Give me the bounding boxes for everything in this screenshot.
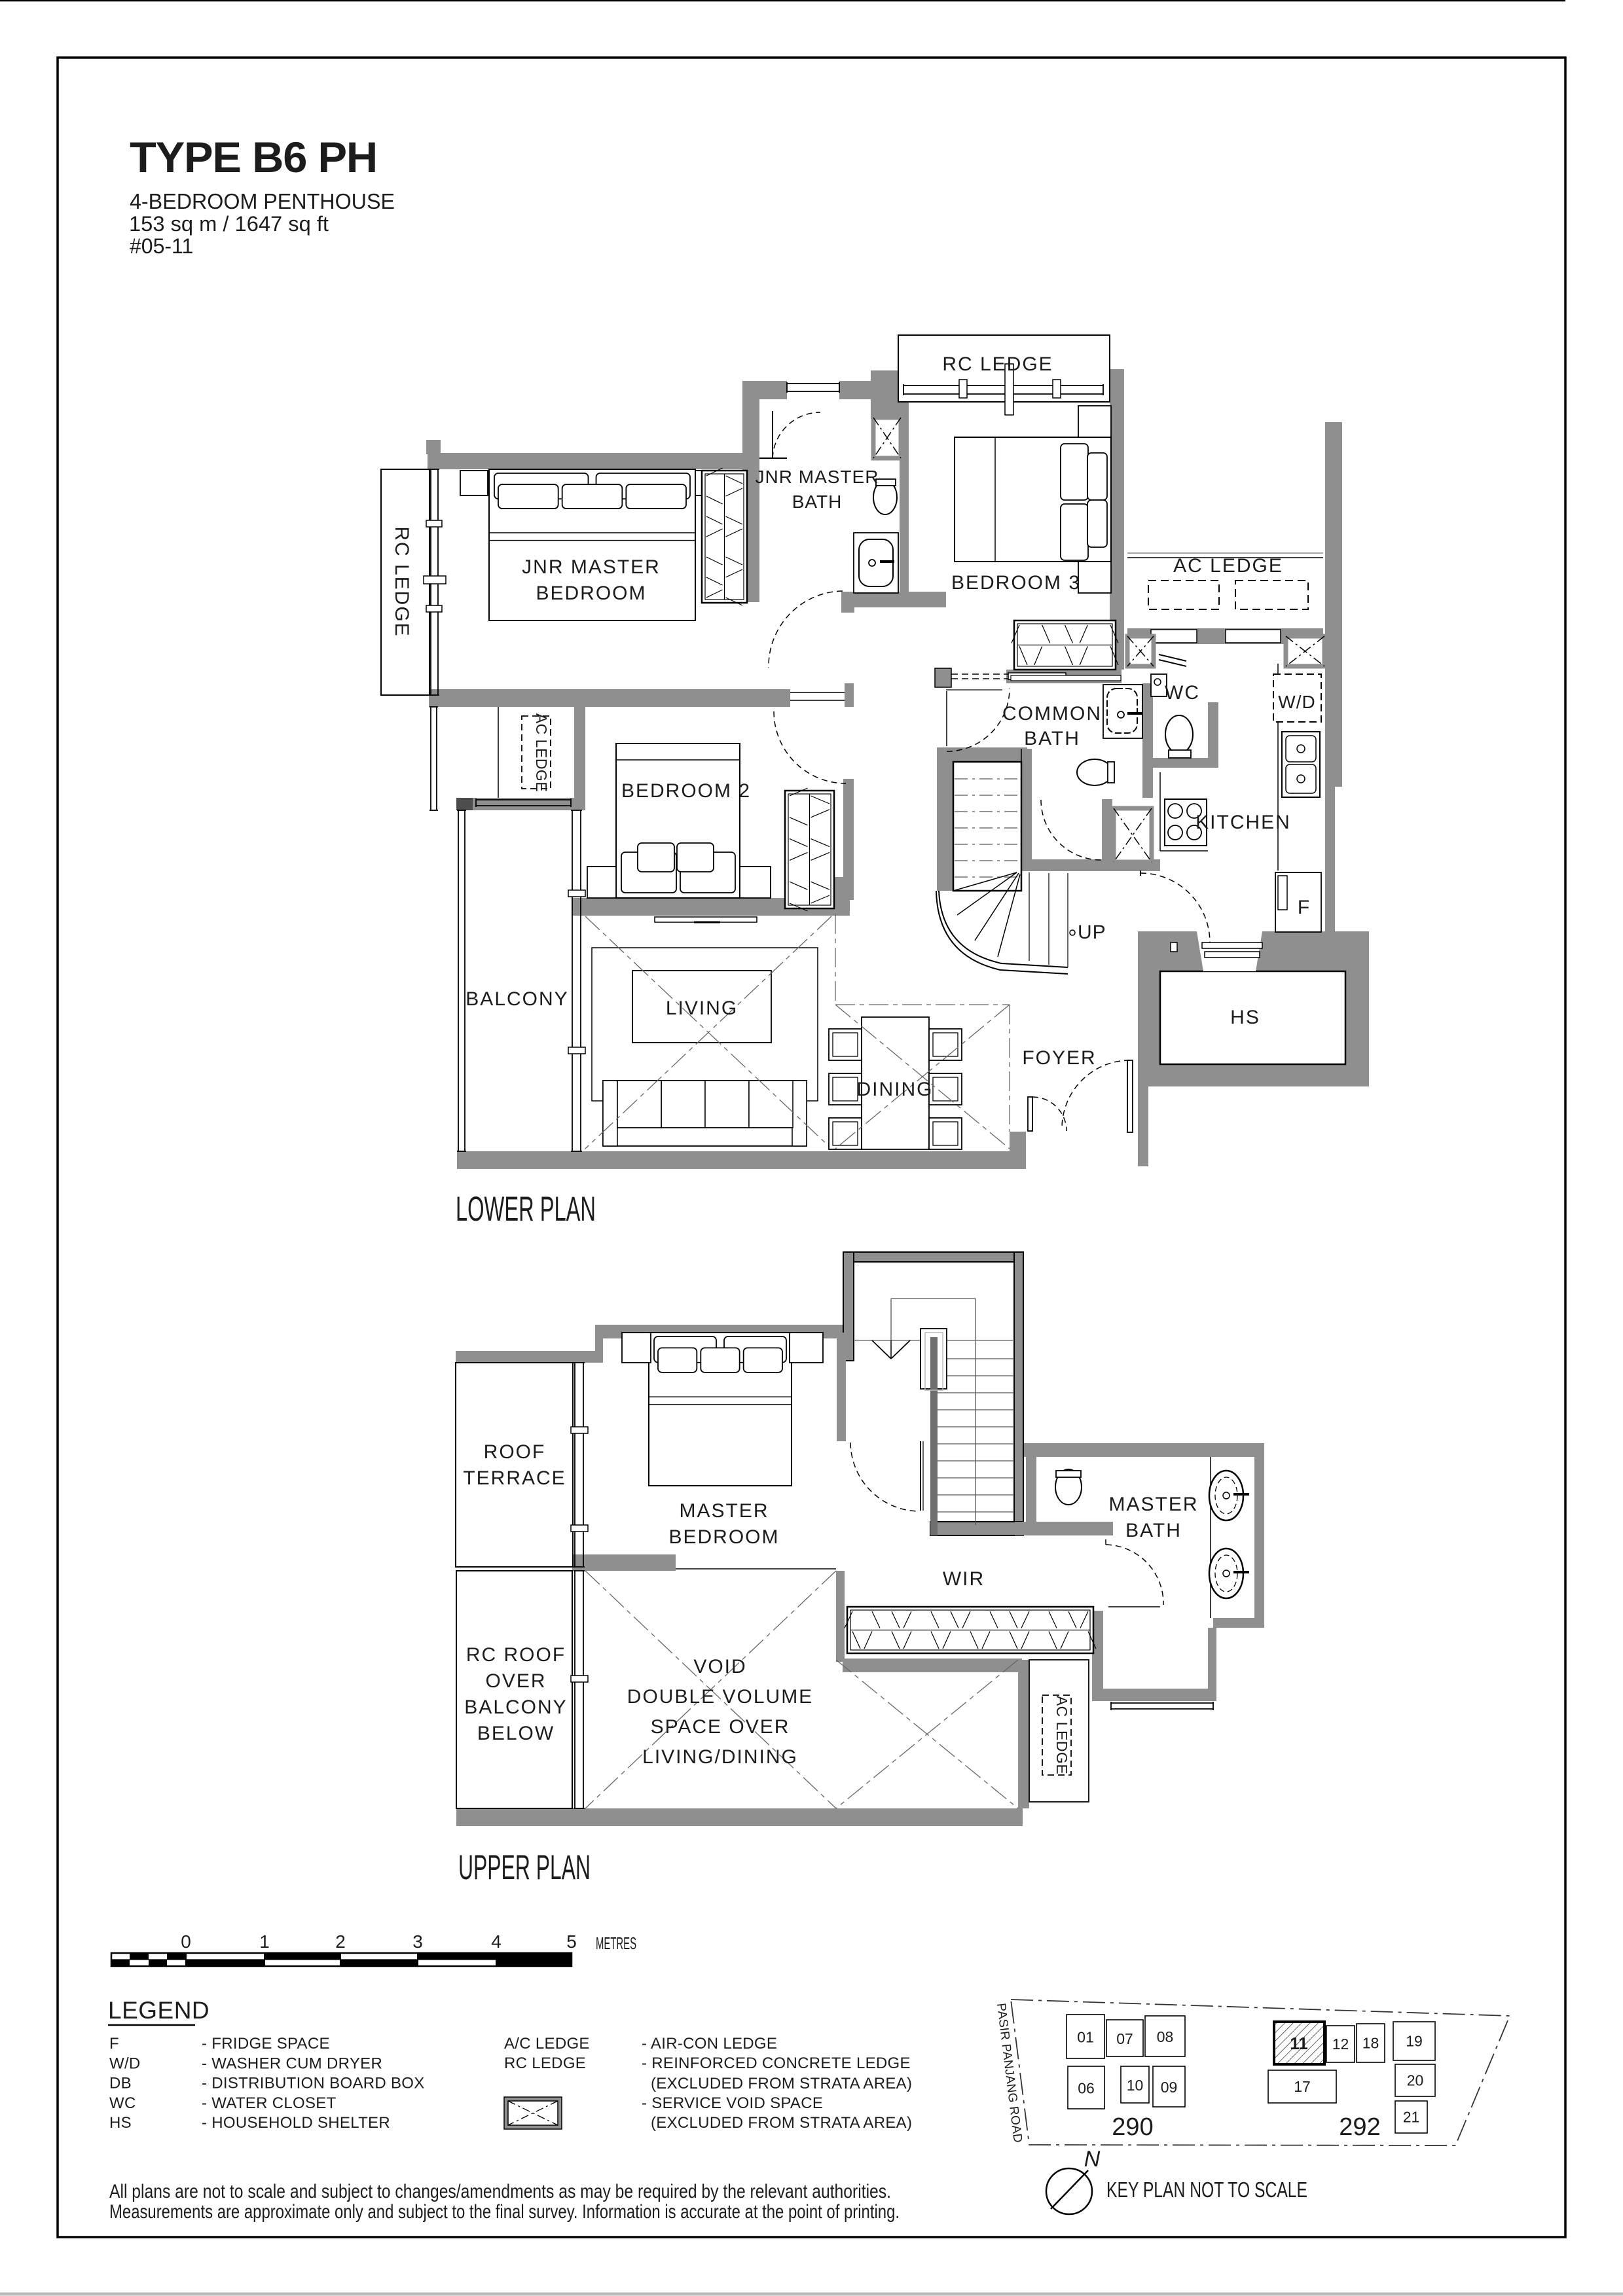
svg-text:BEDROOM 3: BEDROOM 3 <box>951 572 1081 594</box>
svg-text:MASTER: MASTER <box>1108 1494 1198 1515</box>
svg-text:2: 2 <box>335 1931 346 1952</box>
svg-text:JNR MASTER: JNR MASTER <box>756 467 879 487</box>
svg-text:12: 12 <box>1332 2036 1349 2053</box>
svg-text:ROOF: ROOF <box>484 1441 546 1463</box>
svg-text:LOWER PLAN: LOWER PLAN <box>456 1190 596 1229</box>
svg-text:KITCHEN: KITCHEN <box>1195 812 1291 833</box>
svg-text:LIVING: LIVING <box>666 997 738 1019</box>
svg-text:RC ROOF: RC ROOF <box>466 1644 566 1666</box>
svg-text:W/D: W/D <box>109 2054 141 2072</box>
svg-text:WC: WC <box>1165 682 1200 704</box>
svg-text:F: F <box>109 2035 119 2053</box>
svg-text:TYPE B6 PH: TYPE B6 PH <box>130 133 377 181</box>
svg-text:BEDROOM: BEDROOM <box>536 583 646 604</box>
svg-text:- DISTRIBUTION BOARD BOX: - DISTRIBUTION BOARD BOX <box>202 2075 425 2092</box>
svg-text:AC LEDGE: AC LEDGE <box>1053 1696 1070 1774</box>
svg-text:4-BEDROOM PENTHOUSE: 4-BEDROOM PENTHOUSE <box>130 189 395 213</box>
svg-text:19: 19 <box>1406 2033 1423 2050</box>
svg-text:DB: DB <box>109 2075 132 2092</box>
svg-text:3: 3 <box>412 1931 423 1952</box>
svg-text:- WATER CLOSET: - WATER CLOSET <box>202 2094 337 2112</box>
svg-text:W/D: W/D <box>1278 692 1315 712</box>
svg-text:290: 290 <box>1112 2113 1153 2141</box>
svg-text:AC LEDGE: AC LEDGE <box>533 713 550 792</box>
svg-text:FOYER: FOYER <box>1022 1047 1096 1069</box>
svg-text:LIVING/DINING: LIVING/DINING <box>642 1746 798 1768</box>
svg-text:RC LEDGE: RC LEDGE <box>504 2054 586 2072</box>
svg-text:0: 0 <box>181 1931 191 1952</box>
svg-text:- FRIDGE SPACE: - FRIDGE SPACE <box>202 2035 330 2053</box>
svg-text:- HOUSEHOLD SHELTER: - HOUSEHOLD SHELTER <box>202 2114 390 2132</box>
svg-text:RC LEDGE: RC LEDGE <box>391 526 412 637</box>
svg-text:20: 20 <box>1407 2072 1424 2089</box>
svg-text:LEGEND: LEGEND <box>108 1997 210 2024</box>
svg-text:BALCONY: BALCONY <box>464 1696 567 1718</box>
svg-text:DOUBLE VOLUME: DOUBLE VOLUME <box>627 1686 813 1708</box>
svg-text:01: 01 <box>1077 2029 1094 2046</box>
svg-text:292: 292 <box>1339 2113 1380 2141</box>
svg-text:RC LEDGE: RC LEDGE <box>942 353 1053 375</box>
svg-text:COMMON: COMMON <box>1002 703 1102 725</box>
svg-text:BATH: BATH <box>1125 1520 1182 1541</box>
svg-text:18: 18 <box>1362 2035 1379 2052</box>
svg-text:HS: HS <box>109 2114 132 2132</box>
svg-text:A/C LEDGE: A/C LEDGE <box>504 2035 590 2053</box>
svg-text:07: 07 <box>1116 2030 1133 2047</box>
svg-text:- SERVICE VOID SPACE: - SERVICE VOID SPACE <box>642 2094 823 2112</box>
svg-text:BEDROOM: BEDROOM <box>668 1526 779 1548</box>
svg-text:08: 08 <box>1157 2028 1174 2045</box>
svg-text:#05-11: #05-11 <box>130 234 193 258</box>
svg-text:JNR MASTER: JNR MASTER <box>522 556 661 578</box>
svg-text:- WASHER CUM DRYER: - WASHER CUM DRYER <box>202 2054 382 2072</box>
svg-text:AC LEDGE: AC LEDGE <box>1173 555 1283 577</box>
svg-text:BALCONY: BALCONY <box>465 988 568 1010</box>
svg-text:17: 17 <box>1294 2078 1311 2095</box>
svg-text:All plans are not to scale and: All plans are not to scale and subject t… <box>109 2181 891 2202</box>
svg-text:N: N <box>1084 2147 1101 2172</box>
svg-text:F: F <box>1298 897 1311 918</box>
svg-text:5: 5 <box>566 1931 577 1952</box>
svg-text:OVER: OVER <box>485 1670 546 1692</box>
svg-text:VOID: VOID <box>693 1656 746 1677</box>
svg-text:- REINFORCED CONCRETE LEDGE: - REINFORCED CONCRETE LEDGE <box>642 2054 911 2072</box>
svg-text:21: 21 <box>1403 2109 1420 2126</box>
svg-text:1: 1 <box>259 1931 270 1952</box>
svg-text:TERRACE: TERRACE <box>463 1467 566 1489</box>
svg-text:UPPER PLAN: UPPER PLAN <box>458 1848 591 1887</box>
svg-text:(EXCLUDED FROM STRATA AREA): (EXCLUDED FROM STRATA AREA) <box>651 2075 912 2092</box>
svg-text:06: 06 <box>1078 2080 1095 2097</box>
svg-text:BEDROOM 2: BEDROOM 2 <box>621 780 751 802</box>
svg-text:BATH: BATH <box>792 492 843 512</box>
svg-text:11: 11 <box>1290 2034 1308 2053</box>
svg-text:10: 10 <box>1127 2077 1144 2094</box>
svg-text:WC: WC <box>109 2094 136 2112</box>
svg-text:HS: HS <box>1230 1007 1260 1028</box>
svg-text:- AIR-CON LEDGE: - AIR-CON LEDGE <box>642 2035 777 2053</box>
svg-text:SPACE OVER: SPACE OVER <box>651 1716 790 1738</box>
svg-text:MASTER: MASTER <box>679 1500 769 1522</box>
svg-text:(EXCLUDED FROM STRATA AREA): (EXCLUDED FROM STRATA AREA) <box>651 2114 912 2132</box>
svg-text:WIR: WIR <box>943 1568 985 1590</box>
svg-text:Measurements are approximate o: Measurements are approximate only and su… <box>109 2201 900 2223</box>
svg-text:BATH: BATH <box>1024 728 1080 749</box>
svg-text:BELOW: BELOW <box>477 1723 555 1744</box>
svg-text:09: 09 <box>1161 2079 1178 2096</box>
svg-text:KEY PLAN NOT TO SCALE: KEY PLAN NOT TO SCALE <box>1106 2178 1307 2202</box>
svg-text:DINING: DINING <box>857 1079 934 1100</box>
svg-text:UP: UP <box>1078 922 1106 943</box>
svg-text:153 sq m / 1647 sq ft: 153 sq m / 1647 sq ft <box>129 212 329 236</box>
svg-text:METRES: METRES <box>596 1933 636 1953</box>
svg-text:4: 4 <box>491 1931 501 1952</box>
